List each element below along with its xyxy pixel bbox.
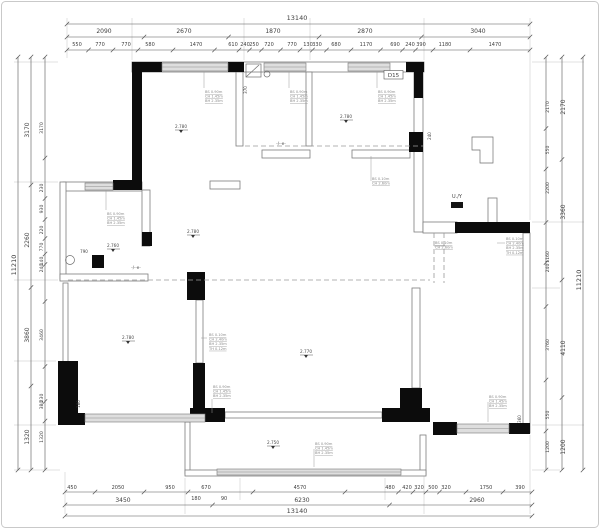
structural-wall: [228, 62, 244, 72]
dim-label: 3460: [39, 329, 45, 341]
floor-plan-drawing: 1314020902670187028703040550770770580147…: [0, 0, 600, 529]
elevation-label: 2.770: [300, 349, 312, 354]
wall-segment: [210, 181, 240, 189]
structural-wall: [406, 62, 424, 72]
dim-label: 390: [416, 42, 426, 48]
dim-label: 770: [121, 42, 131, 48]
window-annotation-line: BS 0.10m: [435, 241, 453, 245]
structural-wall: [58, 413, 85, 425]
wall-segment: [423, 222, 457, 233]
dim-label: 13140: [287, 507, 308, 515]
wall-segment: [420, 435, 426, 475]
dim-label: 1320: [39, 431, 45, 443]
dim-label: 220: [39, 226, 45, 235]
window-annotation-line: CH 1.45m: [290, 95, 308, 99]
dim-label: 240: [545, 264, 551, 273]
dim-label: 13140: [287, 14, 308, 22]
window-annotation-line: BS 0.90m: [107, 212, 125, 216]
dim-label: 2260: [24, 232, 31, 247]
window-annotation-line: BH 2.35m: [489, 404, 507, 408]
dim-label: 3170: [39, 122, 45, 134]
wall-segment: [60, 182, 66, 280]
dim-label: 330: [312, 42, 322, 48]
dim-label: 550: [72, 42, 82, 48]
dim-label: 690: [390, 42, 400, 48]
window-annotation-line: BH 2.35m: [205, 99, 223, 103]
panel-tag-label: U./Y: [452, 194, 463, 200]
window-annotation-line: BH 2.35m: [315, 451, 333, 455]
dim-label: 790: [80, 249, 88, 254]
wall-segment: [225, 412, 382, 418]
dim-label: 1750: [480, 485, 493, 491]
dim-label: -/-·e-: [131, 265, 141, 270]
door-tag-label: D15: [388, 73, 400, 79]
dim-label: 1180: [439, 42, 452, 48]
window-annotation-line: BH 2.35m: [209, 342, 227, 346]
dim-label: 3760: [545, 339, 551, 351]
dim-label: 230: [39, 184, 45, 193]
wall-segment: [306, 72, 312, 146]
structural-wall: [132, 62, 142, 180]
dim-label: 610: [228, 42, 238, 48]
structural-wall: [455, 222, 530, 233]
window-annotation-line: BH 2.35m: [213, 394, 231, 398]
panel-symbol: [451, 202, 463, 208]
structural-wall: [193, 363, 205, 413]
window-annotation-line: BS 0.90m: [290, 90, 308, 94]
dim-label: 930: [39, 205, 45, 214]
dim-label: 380: [39, 401, 45, 410]
dim-label: 950: [165, 485, 175, 491]
window-annotation-line: CH 1.45m: [205, 95, 223, 99]
dim-label: 2170: [560, 99, 567, 114]
dim-label: 2670: [176, 28, 191, 35]
wall-segment: [488, 198, 497, 224]
structural-wall: [113, 180, 142, 190]
dim-label: 450: [67, 485, 77, 491]
image-border: [2, 2, 599, 528]
window-annotation-line: BH 2.35m: [506, 246, 524, 250]
window-annotation-line: BH 2.35m: [107, 221, 125, 225]
dim-label: 320: [414, 485, 424, 491]
structural-wall: [382, 408, 430, 422]
dim-label: 550: [545, 411, 551, 420]
dim-label: 360: [517, 415, 522, 423]
dim-label: 6230: [294, 497, 309, 504]
structural-wall: [433, 422, 457, 435]
dim-label: 1870: [265, 28, 280, 35]
dim-label: 11210: [10, 255, 18, 276]
dim-label: 420: [402, 485, 412, 491]
dim-label: 240: [39, 264, 45, 273]
window-annotation-line: CH 1.45m: [489, 400, 507, 404]
dim-label: 1160: [545, 251, 551, 263]
dim-label: 2050: [112, 485, 125, 491]
dim-label: 580: [145, 42, 155, 48]
dim-label: 770: [287, 42, 297, 48]
dim-label: 500: [428, 485, 438, 491]
structural-wall: [409, 132, 423, 152]
dim-label: 3040: [470, 28, 485, 35]
dim-label: 1320: [24, 429, 31, 444]
structural-wall: [58, 361, 78, 413]
dim-label: 250: [249, 42, 259, 48]
window-annotation-line: TH 0.12m: [208, 347, 227, 351]
dim-label: 1200: [560, 439, 567, 454]
window-annotation-line: BS 0.90m: [378, 90, 396, 94]
dim-label: 770: [39, 243, 45, 252]
dim-label: 670: [201, 485, 211, 491]
dim-label: 3860: [24, 327, 31, 342]
dim-label: 2200: [545, 182, 551, 194]
structural-wall: [187, 272, 205, 300]
dim-label: 480: [385, 485, 395, 491]
wall-segment: [352, 150, 410, 158]
floor-plan-canvas: 1314020902670187028703040550770770580147…: [0, 0, 600, 529]
dim-label: 680: [331, 42, 341, 48]
window-annotation-line: CH 1.45m: [107, 217, 125, 221]
dim-label: 3360: [560, 204, 567, 219]
dim-label: 1470: [489, 42, 502, 48]
structural-wall: [509, 423, 530, 434]
elevation-label: 2.780: [187, 229, 199, 234]
dim-label: 240: [427, 132, 432, 140]
window-annotation-line: CH 2.60m: [435, 246, 453, 250]
wall-segment: [262, 150, 310, 158]
window-annotation-line: BH 2.35m: [378, 99, 396, 103]
window-annotation-line: BS 0.90m: [315, 442, 333, 446]
dim-label: 2960: [469, 497, 484, 504]
elevation-label: 2.780: [175, 124, 187, 129]
wall-segment: [412, 288, 420, 388]
dim-label: 770: [95, 42, 105, 48]
elevation-label: 2.780: [122, 335, 134, 340]
dim-label: 1470: [190, 42, 203, 48]
dim-label: 550: [545, 146, 551, 155]
wall-segment: [185, 422, 190, 474]
dim-label: 2170: [545, 101, 551, 113]
dim-label: 180: [76, 400, 81, 408]
wall-segment: [236, 72, 243, 146]
window-annotation-line: BS 0.10m: [209, 333, 227, 337]
dim-label: -/-·e-: [276, 141, 286, 146]
window-annotation-line: CH 1.45m: [315, 447, 333, 451]
dim-label: 4110: [560, 340, 567, 355]
dim-label: 11210: [575, 270, 583, 291]
elevation-label: 2.780: [340, 114, 352, 119]
dim-label: 720: [264, 42, 274, 48]
wall-segment: [523, 233, 530, 433]
window-annotation-line: CH 1.45m: [213, 390, 231, 394]
window-annotation-line: BS 0.10m: [372, 177, 390, 181]
window-annotation-line: TH 0.12m: [505, 251, 524, 255]
window-annotation-line: BS 0.90m: [489, 395, 507, 399]
dim-label: 320: [441, 485, 451, 491]
structural-wall: [400, 388, 422, 410]
dim-label: 2090: [96, 28, 111, 35]
wall-segment: [63, 283, 68, 363]
structural-wall: [92, 255, 104, 268]
structural-wall: [414, 72, 423, 98]
window-annotation-line: CH 2.40m: [209, 338, 227, 342]
window-annotation-line: BS 0.90m: [213, 385, 231, 389]
window-annotation-line: CH 1.45m: [378, 95, 396, 99]
structural-wall: [142, 232, 152, 246]
dim-label: 1200: [545, 441, 551, 453]
window-annotation-line: BS 0.90m: [205, 90, 223, 94]
window-annotation-line: CH 2.60m: [372, 182, 390, 186]
window-annotation-line: CH 2.40m: [506, 242, 524, 246]
dim-label: 4570: [294, 485, 307, 491]
elevation-label: 2.760: [107, 243, 119, 248]
elevation-label: 2.750: [267, 440, 279, 445]
window-annotation-line: BH 2.35m: [290, 99, 308, 103]
dim-label: 3170: [24, 122, 31, 137]
window-annotation-line: BS 0.10m: [506, 237, 524, 241]
dim-label: 2870: [357, 28, 372, 35]
wall-segment: [196, 300, 203, 363]
dim-label: 3450: [115, 497, 130, 504]
dim-label: 390: [515, 485, 525, 491]
dim-label: 370: [243, 86, 248, 94]
door-tag: D15: [384, 71, 403, 80]
dim-label: 1170: [360, 42, 373, 48]
dim-label: 180: [191, 496, 201, 502]
dim-label: 240: [405, 42, 415, 48]
dim-label: 90: [221, 496, 227, 502]
